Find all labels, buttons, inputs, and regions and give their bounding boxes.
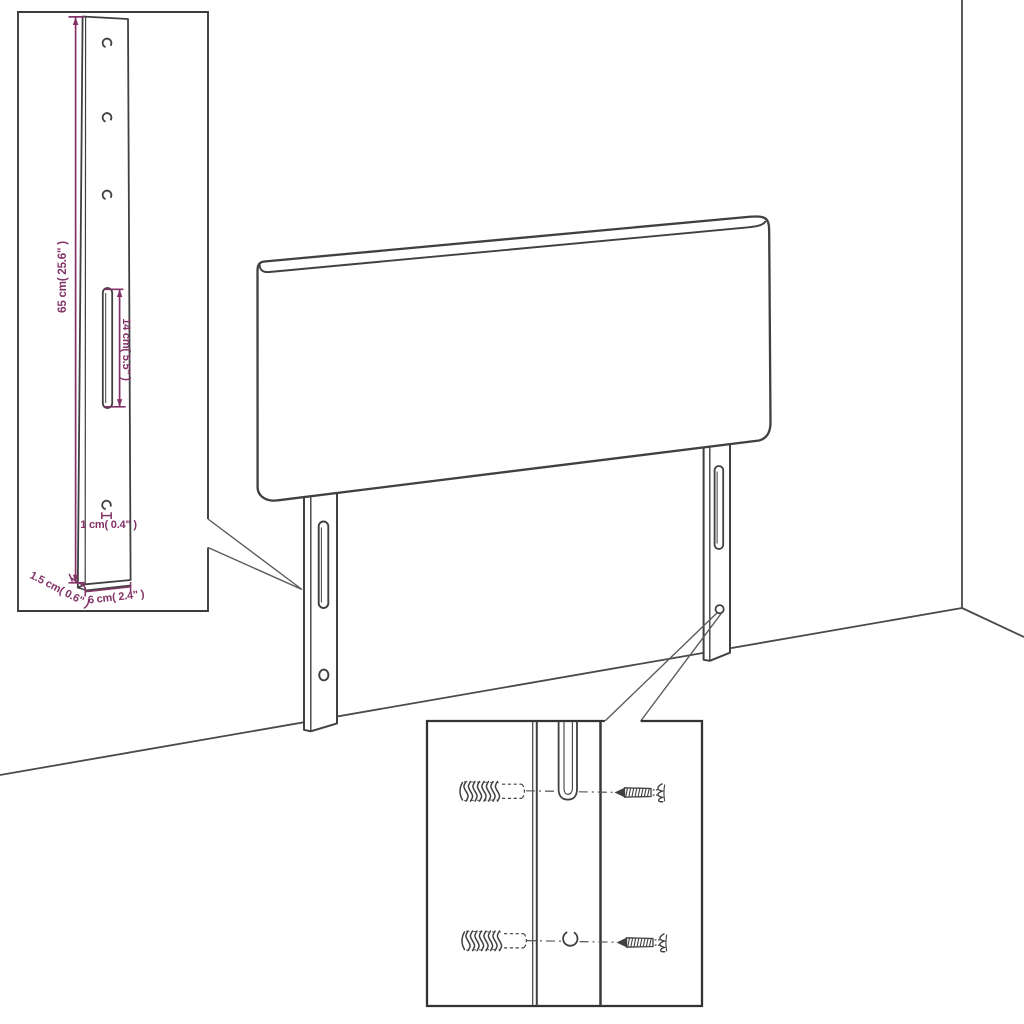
- leg-bar-drawing: [78, 17, 131, 591]
- leg-hole-icon: [319, 670, 328, 681]
- hardware-detail-inset: [427, 613, 722, 1006]
- diagram-svg: 65 cm( 25.6" ) 14 cm( 5.5" ) 1 cm( 0.4" …: [0, 0, 1024, 1024]
- callout-lines: [208, 519, 302, 590]
- product-diagram: 65 cm( 25.6" ) 14 cm( 5.5" ) 1 cm( 0.4" …: [0, 0, 1024, 1024]
- headboard-panel: [258, 217, 771, 501]
- dimension-slot-length-label: 14 cm( 5.5" ): [120, 318, 132, 381]
- dimension-hole-label: 1 cm( 0.4" ): [80, 519, 137, 531]
- mounting-leg-right-icon: [704, 425, 730, 661]
- dimension-height-label: 65 cm( 25.6" ): [57, 241, 69, 313]
- leg-slot-icon: [319, 522, 329, 609]
- floor-line-right: [962, 608, 1024, 637]
- leg-slot-icon: [715, 466, 724, 549]
- leg-slot-icon: [103, 288, 112, 408]
- leg-hole-icon: [716, 605, 724, 613]
